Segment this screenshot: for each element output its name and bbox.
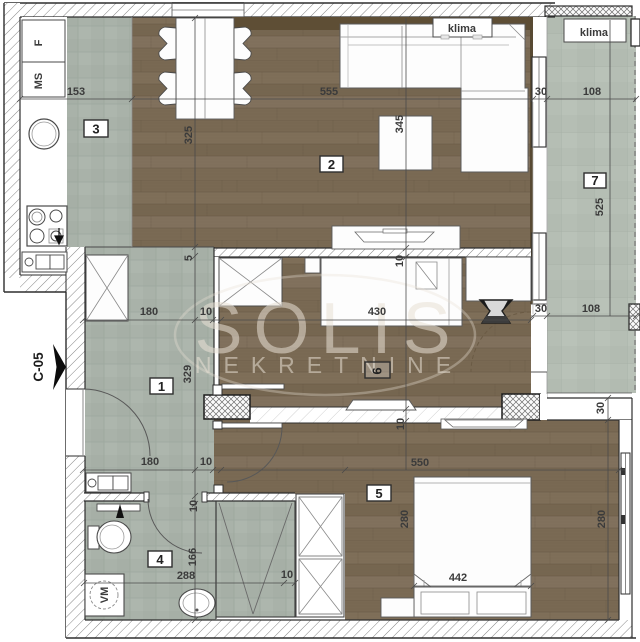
svg-text:525: 525	[594, 198, 606, 216]
svg-text:F: F	[33, 39, 45, 46]
svg-text:108: 108	[582, 303, 600, 315]
svg-text:30: 30	[595, 402, 607, 414]
svg-text:442: 442	[449, 572, 467, 584]
svg-text:C-05: C-05	[31, 352, 46, 382]
svg-text:166: 166	[187, 548, 199, 566]
svg-text:10: 10	[281, 569, 293, 581]
svg-text:550: 550	[411, 457, 429, 469]
svg-text:288: 288	[177, 570, 195, 582]
svg-text:180: 180	[141, 456, 159, 468]
svg-text:30: 30	[535, 86, 547, 98]
svg-text:325: 325	[183, 126, 195, 144]
svg-text:10: 10	[200, 306, 212, 318]
svg-text:10: 10	[200, 456, 212, 468]
svg-text:3: 3	[92, 122, 99, 137]
svg-text:280: 280	[596, 510, 608, 528]
svg-text:5: 5	[375, 486, 382, 501]
svg-text:345: 345	[394, 115, 406, 133]
svg-text:klima: klima	[448, 23, 477, 35]
svg-text:555: 555	[320, 86, 338, 98]
svg-text:430: 430	[368, 306, 386, 318]
svg-text:153: 153	[67, 86, 85, 98]
svg-text:4: 4	[156, 552, 164, 567]
svg-text:klima: klima	[580, 27, 609, 39]
svg-text:108: 108	[583, 86, 601, 98]
svg-text:7: 7	[591, 173, 598, 188]
svg-text:10: 10	[394, 255, 406, 267]
svg-text:280: 280	[399, 510, 411, 528]
svg-text:10: 10	[395, 418, 407, 430]
svg-text:2: 2	[328, 157, 335, 172]
svg-text:30: 30	[535, 303, 547, 315]
svg-text:5: 5	[183, 255, 195, 261]
svg-text:6: 6	[369, 367, 384, 374]
svg-text:10: 10	[188, 500, 200, 512]
svg-text:VM: VM	[99, 587, 111, 604]
svg-text:1: 1	[158, 379, 165, 394]
svg-text:180: 180	[140, 306, 158, 318]
svg-text:NEKRETNINE: NEKRETNINE	[195, 352, 463, 378]
svg-text:MS: MS	[33, 73, 45, 90]
svg-text:329: 329	[182, 365, 194, 383]
